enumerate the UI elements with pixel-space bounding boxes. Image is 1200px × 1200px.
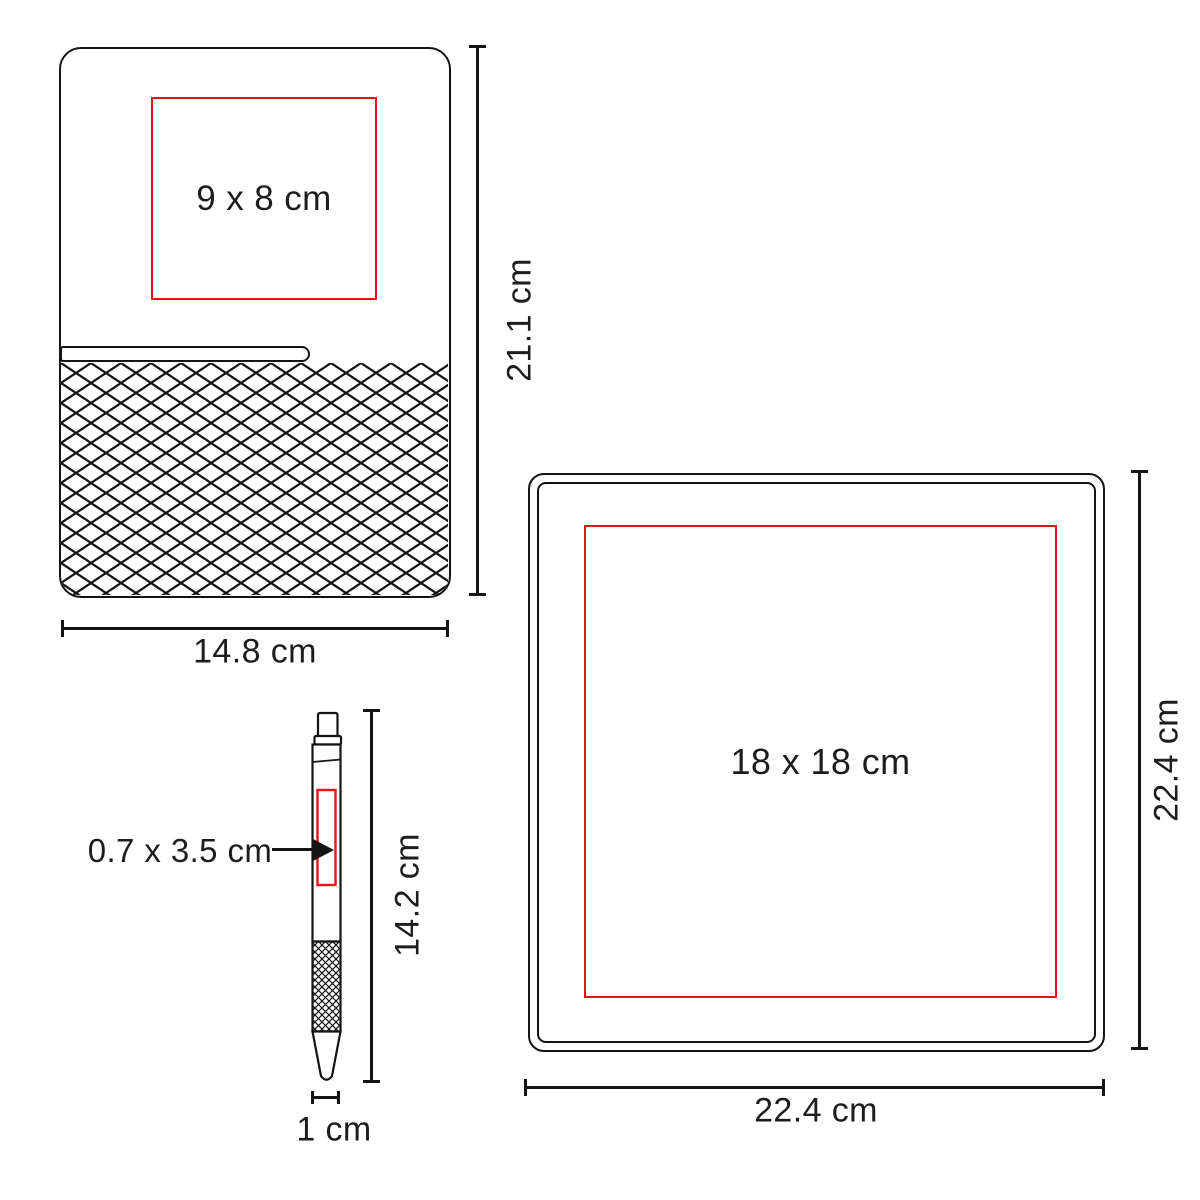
mousepad-height-dim-cap-bottom: [1131, 1047, 1148, 1050]
product-dimension-diagram: 9 x 8 cm 21.1 cm 14.8 cm: [0, 0, 1200, 1200]
mousepad-print-area-label: 18 x 18 cm: [730, 741, 910, 783]
pen-callout-arrow-head: [313, 839, 334, 861]
mousepad-width-dim-cap-right: [1102, 1079, 1105, 1096]
mousepad-height-dim-cap-top: [1131, 470, 1148, 473]
pen-width-label: 1 cm: [296, 1111, 371, 1150]
notebook-height-dim-cap-top: [469, 45, 486, 48]
mousepad-height-label: 22.4 cm: [1148, 698, 1187, 822]
notebook-pen-loop: [60, 346, 310, 362]
pen-print-area: [318, 790, 336, 885]
pen-callout-arrow-line: [272, 848, 316, 851]
pen-width-dim-cap-right: [337, 1091, 340, 1104]
pen-width-dim-line: [312, 1096, 340, 1099]
notebook-mesh-texture: [61, 363, 448, 595]
notebook-width-dim-cap-right: [446, 620, 449, 637]
pen-height-label: 14.2 cm: [389, 833, 428, 957]
mousepad-width-dim-cap-left: [524, 1079, 527, 1096]
pen-width-dim-cap-left: [311, 1091, 314, 1104]
notebook-width-dim-cap-left: [61, 620, 64, 637]
mousepad-width-label: 22.4 cm: [754, 1092, 878, 1131]
mesh-pattern-svg: [61, 363, 448, 595]
pen-collar: [315, 736, 342, 745]
pen-height-dim-cap-top: [363, 709, 380, 712]
pen-illustration: [296, 706, 356, 1088]
mousepad-height-dim-line: [1138, 471, 1141, 1050]
notebook-width-dim-line: [62, 627, 448, 630]
mousepad-width-dim-line: [525, 1086, 1105, 1089]
pen-print-area-label: 0.7 x 3.5 cm: [88, 832, 273, 870]
pen-grip-knurling: [313, 942, 341, 1032]
notebook-height-dim-line: [476, 46, 479, 596]
pen-tip: [313, 1032, 341, 1080]
notebook-print-area-label: 9 x 8 cm: [196, 179, 331, 219]
mousepad-print-area: 18 x 18 cm: [584, 525, 1057, 998]
notebook-width-label: 14.8 cm: [193, 633, 317, 672]
notebook-height-label: 21.1 cm: [501, 258, 540, 382]
pen-height-dim-cap-bottom: [363, 1080, 380, 1083]
notebook-print-area: 9 x 8 cm: [151, 97, 377, 300]
pen-height-dim-line: [370, 710, 373, 1083]
mousepad-outline: 18 x 18 cm: [528, 473, 1105, 1052]
notebook-height-dim-cap-bottom: [469, 593, 486, 596]
notebook-outline: 9 x 8 cm: [59, 47, 451, 598]
pen-push-button: [318, 713, 338, 738]
